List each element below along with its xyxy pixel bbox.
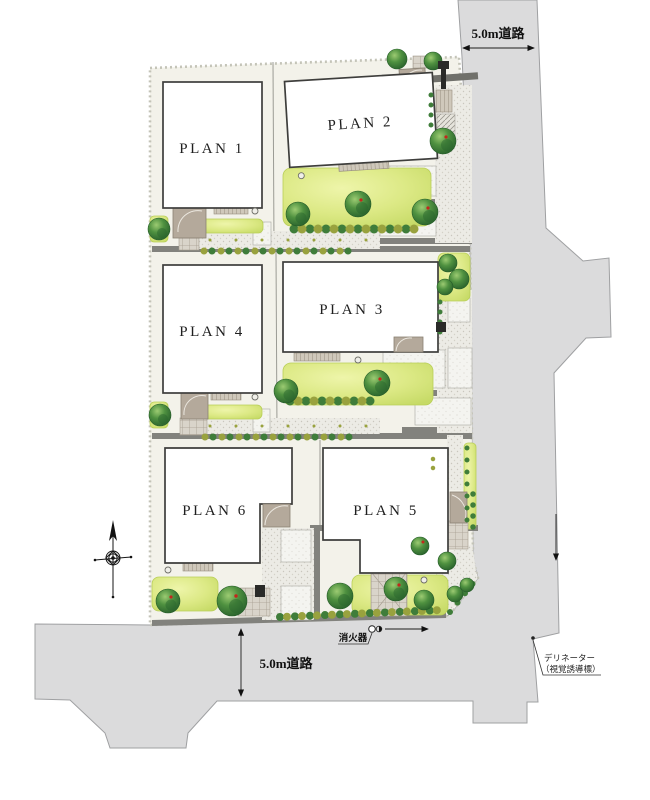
delineator-label-line1: デリネーター: [544, 653, 595, 663]
building-label-plan6: PLAN 6: [182, 503, 247, 519]
compass-icon: [94, 520, 133, 598]
fire-extinguisher-marker: [369, 626, 376, 633]
porch-plan1: [173, 207, 206, 238]
utility-box: [436, 322, 446, 332]
fire-extinguisher-label: 消火器: [339, 632, 368, 644]
road-label-bottom: 5.0m道路: [259, 656, 313, 671]
delineator-label-line2: （視覚誘導標）: [541, 664, 601, 674]
building-label-plan3: PLAN 3: [319, 302, 384, 318]
building-label-plan1: PLAN 1: [179, 141, 244, 157]
deck-plan3: [294, 353, 340, 361]
building-label-plan4: PLAN 4: [179, 324, 244, 340]
delineator-marker: [531, 636, 535, 640]
road-label-top: 5.0m道路: [471, 26, 525, 41]
site-plan: PLAN 1 PLAN 2 PLAN 3 PLAN 4 PLAN 6: [0, 0, 650, 800]
site-plan-svg: PLAN 1 PLAN 2 PLAN 3 PLAN 4 PLAN 6: [0, 0, 650, 800]
utility-box: [255, 585, 265, 597]
plot-plan3: PLAN 3: [283, 262, 438, 363]
building-label-plan5: PLAN 5: [353, 503, 418, 519]
